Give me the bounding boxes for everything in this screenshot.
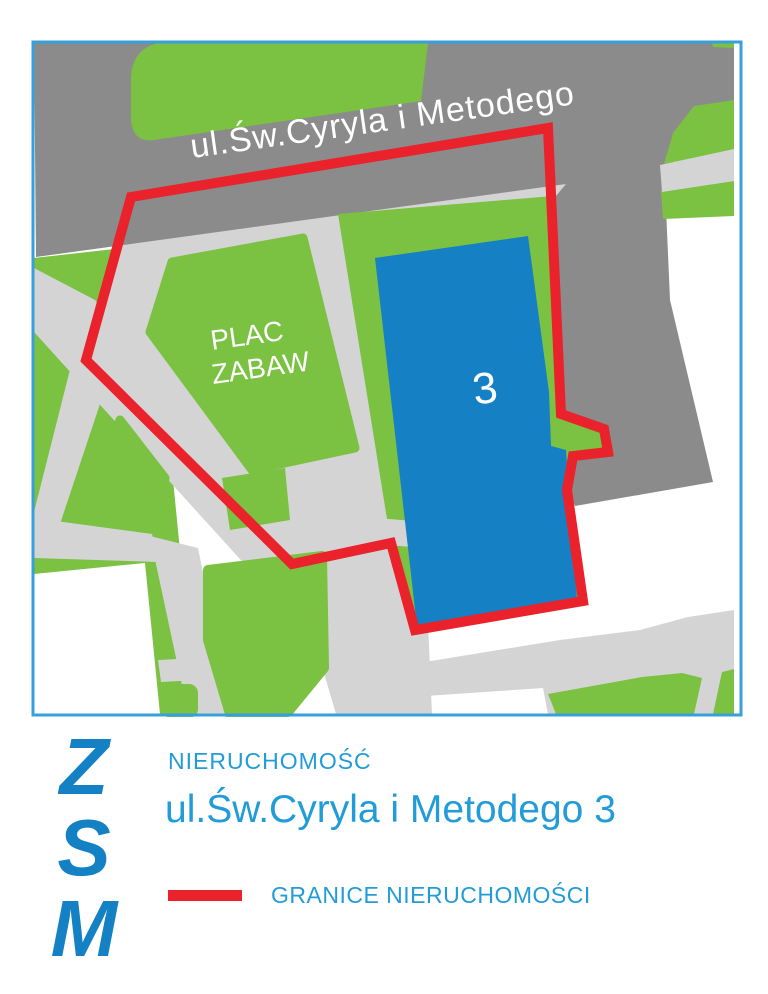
green-patch-small bbox=[162, 684, 198, 717]
page: ul.Św.Cyryla i Metodego PLAC ZABAW 3 Z S… bbox=[0, 0, 768, 994]
property-label: NIERUCHOMOŚĆ bbox=[168, 748, 372, 775]
white-block bbox=[34, 563, 160, 714]
walkway-stub bbox=[158, 658, 200, 682]
zsm-logo: Z S M bbox=[34, 726, 134, 969]
property-address: ul.Św.Cyryla i Metodego 3 bbox=[165, 788, 616, 832]
property-map: ul.Św.Cyryla i Metodego PLAC ZABAW 3 bbox=[31, 40, 743, 717]
green-block-bottom bbox=[208, 556, 324, 714]
boundary-legend-swatch bbox=[168, 890, 242, 901]
boundary-legend-label: GRANICE NIERUCHOMOŚCI bbox=[271, 882, 591, 909]
